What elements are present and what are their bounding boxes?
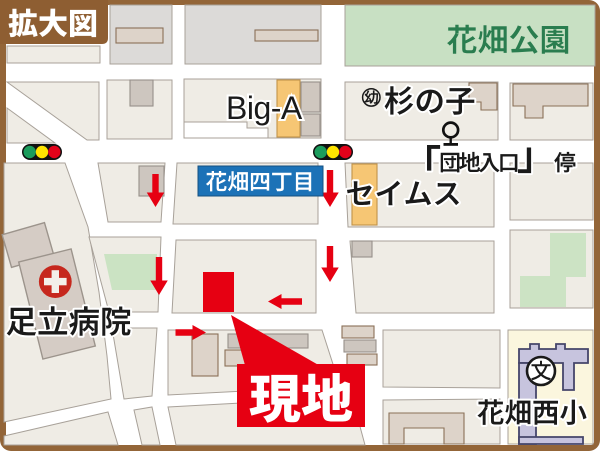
svg-text:Big-A: Big-A <box>226 90 303 126</box>
